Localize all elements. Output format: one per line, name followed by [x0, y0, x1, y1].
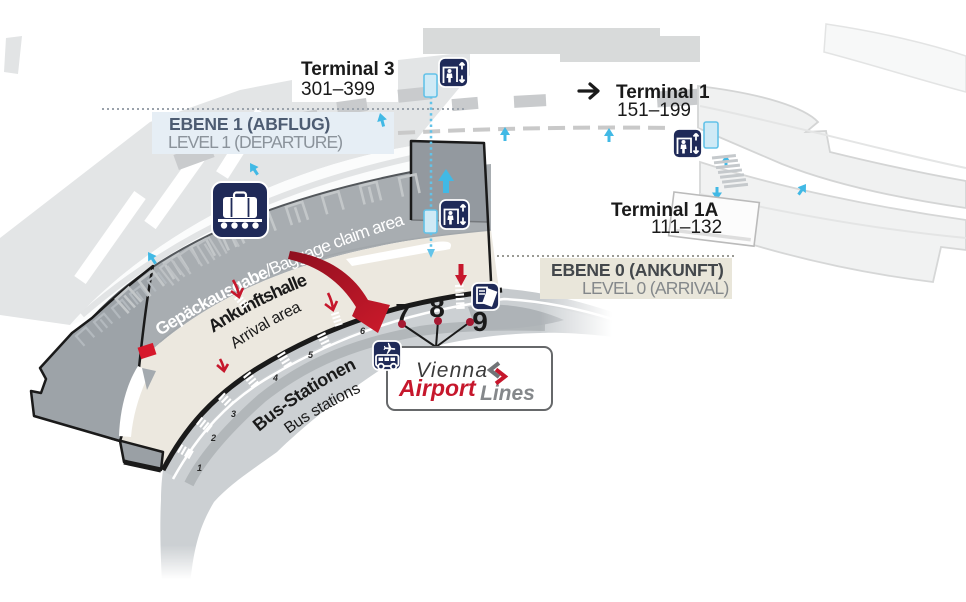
svg-text:LEVEL 1 (DEPARTURE): LEVEL 1 (DEPARTURE) — [168, 132, 342, 152]
svg-text:2: 2 — [210, 433, 216, 443]
svg-text:Airport: Airport — [398, 375, 477, 401]
svg-text:1: 1 — [197, 463, 202, 473]
svg-text:4: 4 — [272, 373, 278, 383]
svg-text:Lines: Lines — [480, 382, 535, 405]
svg-text:111–132: 111–132 — [651, 217, 722, 238]
svg-text:EBENE 0 (ANKUNFT): EBENE 0 (ANKUNFT) — [551, 260, 724, 280]
svg-text:LEVEL 0 (ARRIVAL): LEVEL 0 (ARRIVAL) — [582, 278, 729, 298]
svg-text:301–399: 301–399 — [301, 79, 375, 100]
svg-text:EBENE 1 (ABFLUG): EBENE 1 (ABFLUG) — [169, 114, 330, 134]
svg-text:Terminal 3: Terminal 3 — [301, 59, 395, 80]
svg-text:151–199: 151–199 — [617, 100, 691, 121]
svg-text:3: 3 — [231, 409, 236, 419]
